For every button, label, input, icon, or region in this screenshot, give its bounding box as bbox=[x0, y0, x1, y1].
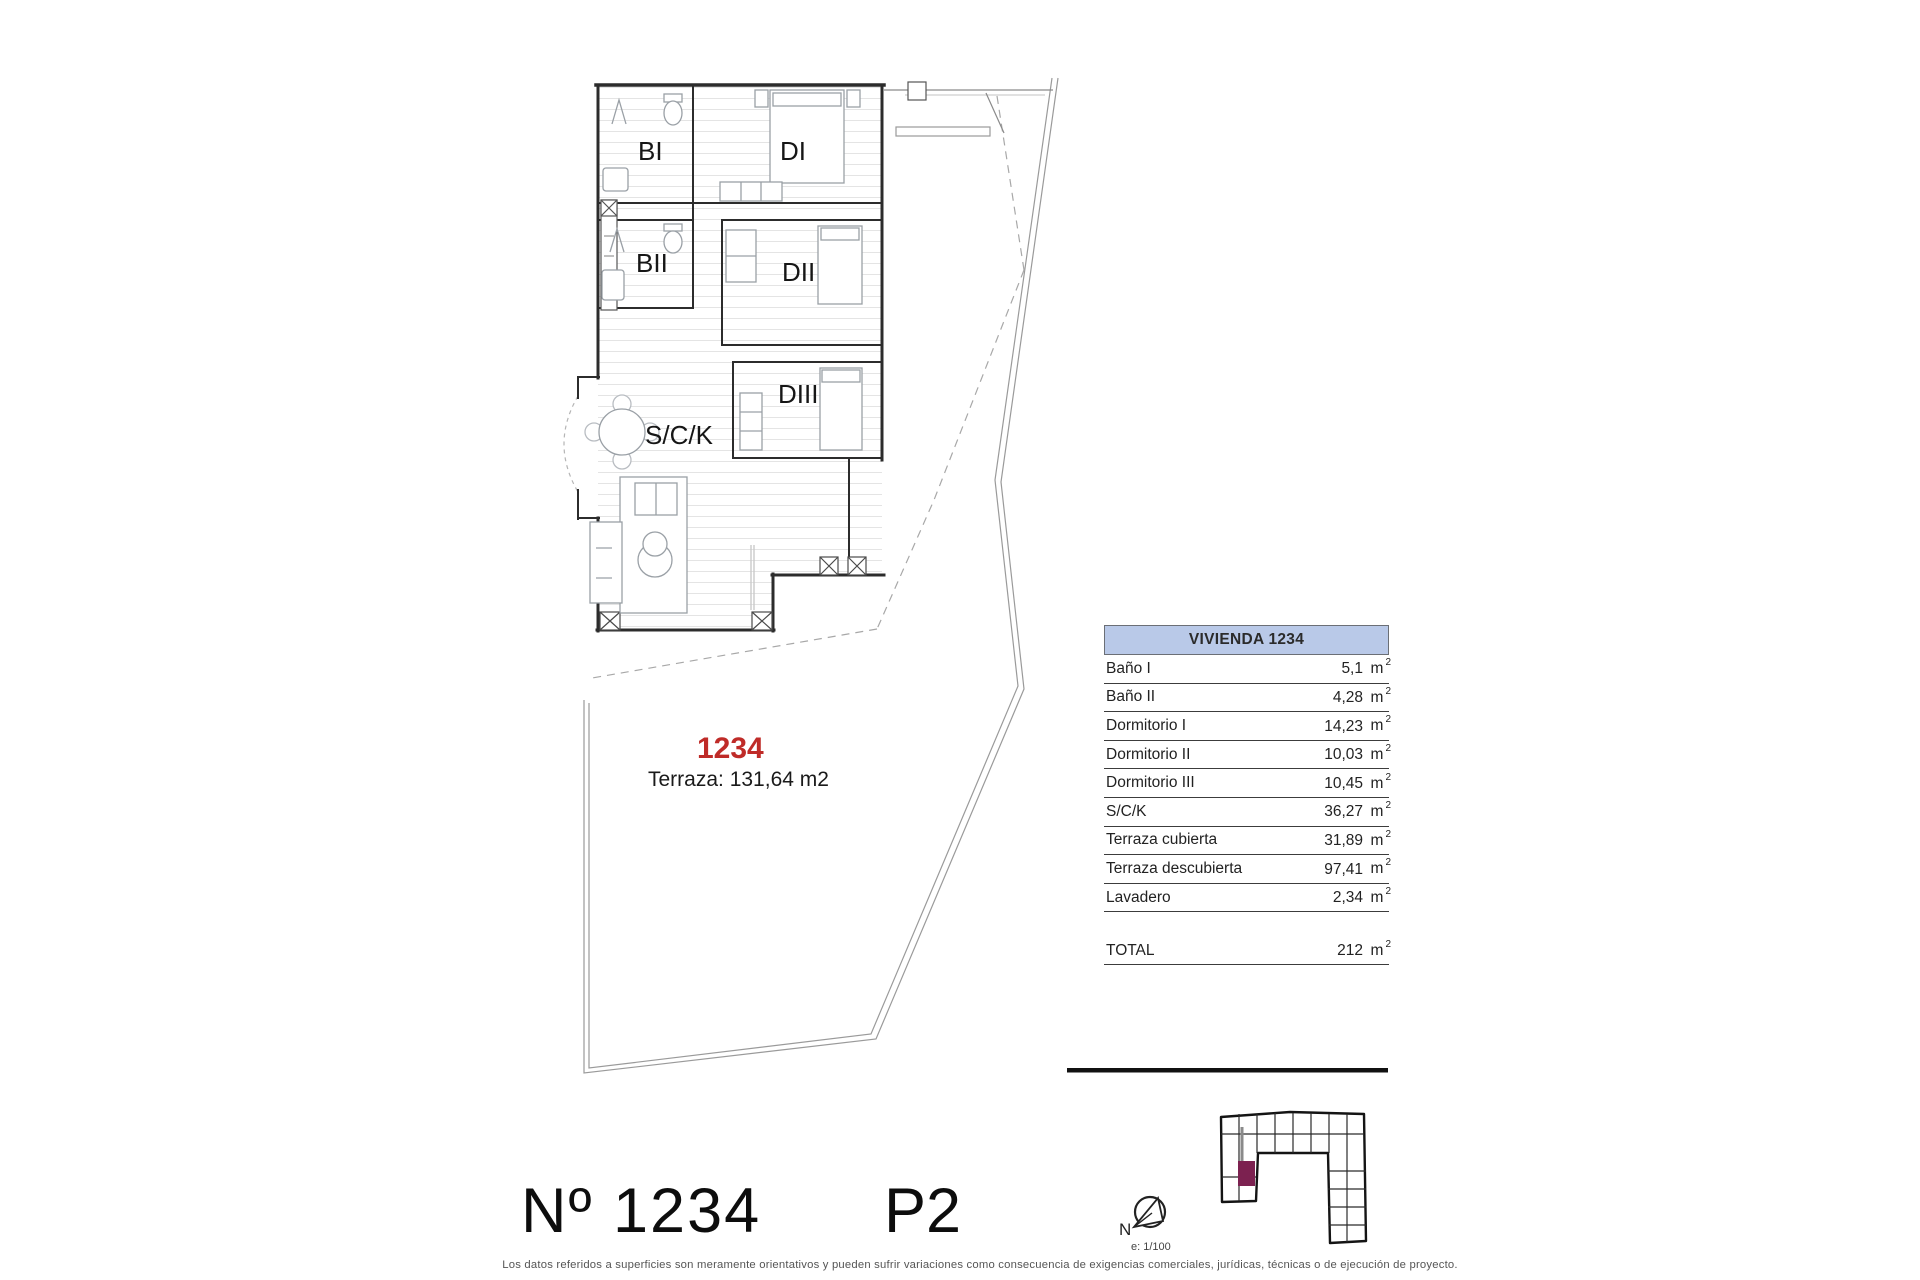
row-value: 31,89m2 bbox=[1324, 831, 1389, 850]
row-value: 5,1m2 bbox=[1341, 659, 1389, 678]
table-row: S/C/K 36,27m2 bbox=[1104, 798, 1389, 827]
coffee-table-top bbox=[643, 532, 667, 556]
room-label-dii: DII bbox=[782, 257, 815, 287]
pillow bbox=[822, 370, 860, 382]
unit-number-label: 1234 bbox=[697, 732, 764, 765]
row-label: Dormitorio II bbox=[1104, 746, 1190, 764]
nightstand bbox=[847, 90, 860, 107]
row-label: Dormitorio III bbox=[1104, 774, 1195, 792]
legal-disclaimer: Los datos referidos a superficies son me… bbox=[40, 1259, 1920, 1271]
row-label: Terraza descubierta bbox=[1104, 860, 1242, 878]
floor-plan-page: { "plan": { "unit_number_red": "1234", "… bbox=[0, 0, 1920, 1280]
room-label-bii: BII bbox=[636, 248, 668, 278]
row-label: Baño II bbox=[1104, 688, 1155, 706]
room-label-sck: S/C/K bbox=[645, 420, 714, 450]
terrace-area-label: Terraza: 131,64 m2 bbox=[648, 768, 829, 791]
compass-north-label: N bbox=[1119, 1220, 1131, 1239]
row-value: 2,34m2 bbox=[1333, 888, 1389, 907]
surface-table-header: VIVIENDA 1234 bbox=[1104, 625, 1389, 655]
room-label-bi: BI bbox=[638, 136, 663, 166]
column bbox=[908, 82, 926, 100]
floor-level-label: P2 bbox=[884, 1175, 961, 1247]
pillow bbox=[821, 228, 859, 240]
row-label: Lavadero bbox=[1104, 889, 1171, 907]
column bbox=[848, 557, 866, 575]
column bbox=[820, 557, 838, 575]
unit-title: Nº 1234 bbox=[521, 1175, 761, 1247]
column bbox=[600, 612, 620, 630]
total-label: TOTAL bbox=[1104, 942, 1155, 960]
table-row: Baño II 4,28m2 bbox=[1104, 684, 1389, 713]
row-label: Baño I bbox=[1104, 660, 1151, 678]
surface-table: VIVIENDA 1234 Baño I 5,1m2 Baño II 4,28m… bbox=[1104, 625, 1389, 965]
row-label: Terraza cubierta bbox=[1104, 831, 1217, 849]
highlighted-unit bbox=[1238, 1161, 1255, 1186]
pillow bbox=[773, 93, 841, 106]
north-compass-icon bbox=[1134, 1197, 1165, 1227]
sink bbox=[602, 270, 624, 300]
row-value: 10,03m2 bbox=[1324, 745, 1389, 764]
wardrobe bbox=[720, 182, 782, 201]
table-row: Baño I 5,1m2 bbox=[1104, 655, 1389, 684]
table-row: Terraza cubierta 31,89m2 bbox=[1104, 827, 1389, 856]
floor-plan-canvas: BI DI BII DII DIII S/C/K 1234 Terraza: 1… bbox=[0, 0, 1920, 1280]
row-value: 97,41m2 bbox=[1324, 859, 1389, 878]
table-row: Lavadero 2,34m2 bbox=[1104, 884, 1389, 913]
room-label-di: DI bbox=[780, 136, 806, 166]
row-label: S/C/K bbox=[1104, 803, 1146, 821]
upper-terrace bbox=[884, 82, 1053, 136]
sink bbox=[603, 168, 628, 191]
row-value: 10,45m2 bbox=[1324, 774, 1389, 793]
row-value: 14,23m2 bbox=[1324, 716, 1389, 735]
toilet-tank bbox=[664, 224, 682, 231]
building-key-plan bbox=[1221, 1112, 1366, 1243]
table-row: Terraza descubierta 97,41m2 bbox=[1104, 855, 1389, 884]
dining-table bbox=[599, 409, 645, 455]
row-label: Dormitorio I bbox=[1104, 717, 1186, 735]
total-value: 212m2 bbox=[1337, 941, 1389, 960]
nightstand bbox=[755, 90, 768, 107]
row-value: 4,28m2 bbox=[1333, 688, 1389, 707]
table-row: Dormitorio I 14,23m2 bbox=[1104, 712, 1389, 741]
table-total-row: TOTAL 212m2 bbox=[1104, 926, 1389, 965]
wardrobe bbox=[740, 393, 762, 450]
table-row: Dormitorio III 10,45m2 bbox=[1104, 769, 1389, 798]
toilet bbox=[664, 101, 682, 125]
divider-line bbox=[1067, 1068, 1388, 1073]
entry-door-arc bbox=[564, 396, 578, 492]
row-value: 36,27m2 bbox=[1324, 802, 1389, 821]
scale-note: e: 1/100 bbox=[1131, 1241, 1171, 1253]
column bbox=[752, 612, 772, 630]
table-row: Dormitorio II 10,03m2 bbox=[1104, 741, 1389, 770]
chaise bbox=[590, 522, 622, 603]
room-label-diii: DIII bbox=[778, 379, 818, 409]
